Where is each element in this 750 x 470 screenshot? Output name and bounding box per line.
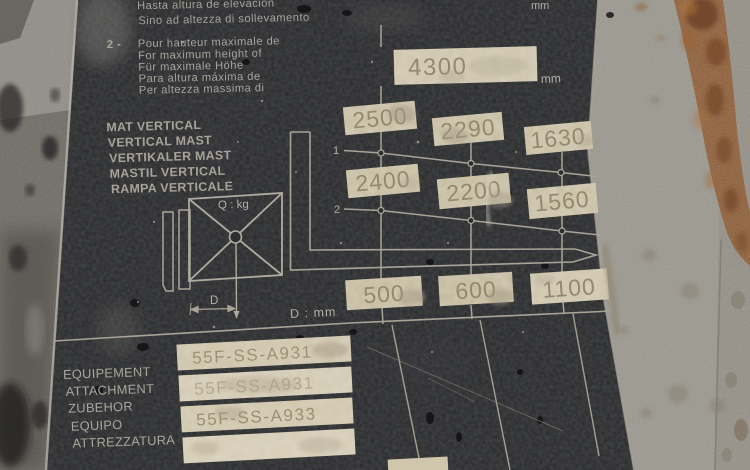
svg-text:1560: 1560 <box>533 186 590 217</box>
svg-text:mm: mm <box>531 0 549 12</box>
svg-text:MAT VERTICAL: MAT VERTICAL <box>106 118 201 134</box>
svg-text:EQUIPO: EQUIPO <box>71 417 123 434</box>
svg-text:2: 2 <box>334 204 340 216</box>
svg-text:EQUIPEMENT: EQUIPEMENT <box>63 364 151 382</box>
svg-text:mm: mm <box>541 71 561 86</box>
svg-text:2 -: 2 - <box>107 39 122 51</box>
svg-text:Q : kg: Q : kg <box>218 199 249 212</box>
svg-text:D: D <box>210 295 218 307</box>
svg-text:VERTICAL MAST: VERTICAL MAST <box>108 133 213 150</box>
svg-text:1: 1 <box>333 145 339 157</box>
svg-text:D : mm: D : mm <box>290 305 337 321</box>
svg-text:ZUBEHOR: ZUBEHOR <box>68 399 133 416</box>
svg-text:ATTACHMENT: ATTACHMENT <box>65 381 154 399</box>
